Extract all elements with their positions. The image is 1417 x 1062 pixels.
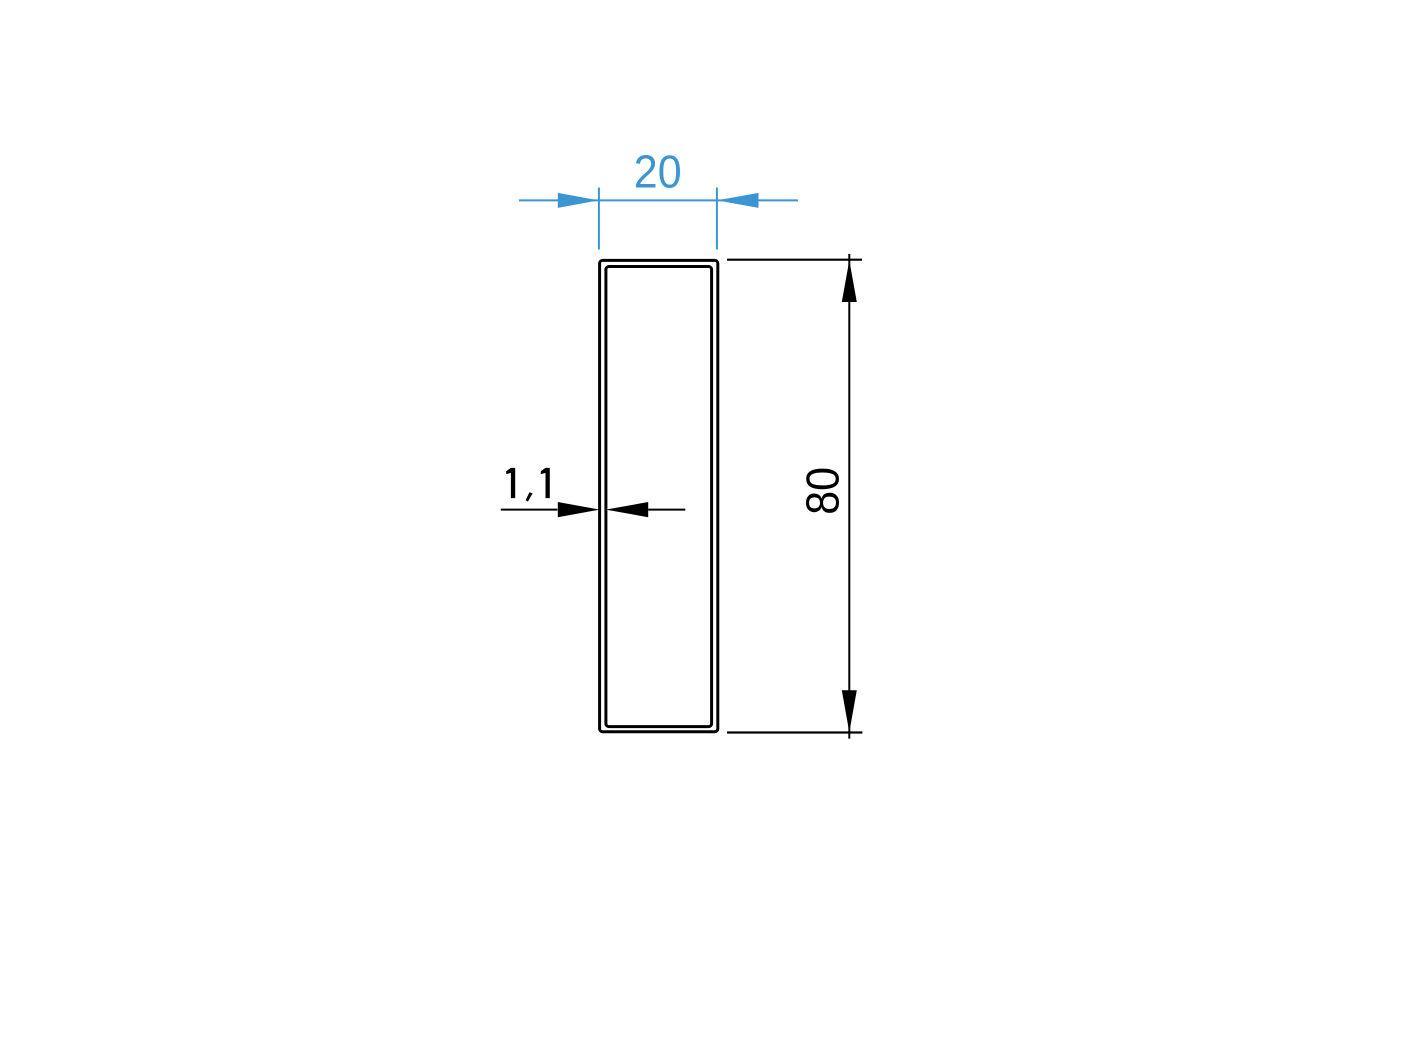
svg-text:80: 80	[796, 467, 848, 515]
svg-text:20: 20	[634, 146, 682, 198]
